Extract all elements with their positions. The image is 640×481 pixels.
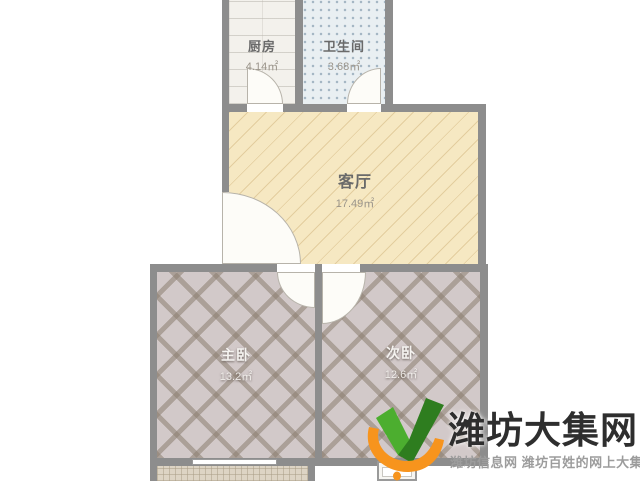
living-top-wall-mid [283, 104, 347, 112]
watermark-title: 潍坊大集网 [448, 400, 640, 454]
living-top-wall-right [381, 104, 486, 112]
kitchen-bath-divider-wall [295, 0, 303, 104]
master-bedroom-window [192, 459, 277, 465]
kitchen-name: 厨房 [246, 36, 278, 55]
second-bedroom-name: 次卧 [385, 343, 417, 363]
living-left-wall [222, 112, 229, 192]
balcony-floor [157, 466, 308, 481]
floorplan-canvas: 厨房 4.14㎡ 卫生间 3.68㎡ 客厅 17.49㎡ 主卧 13.2㎡ 次卧… [0, 0, 640, 481]
living-top-wall-left [222, 104, 247, 112]
site-logo-icon [366, 396, 448, 481]
watermark-subtitle: 潍坊信息网 潍坊百姓的网上大集 [450, 452, 640, 471]
bathroom-label: 卫生间 3.68㎡ [323, 36, 365, 74]
living-room-name: 客厅 [336, 168, 375, 192]
second-bedroom-area: 12.6㎡ [385, 366, 417, 382]
living-room-area: 17.49㎡ [336, 195, 375, 211]
kitchen-left-wall [222, 0, 229, 112]
living-room-label: 客厅 17.49㎡ [336, 168, 375, 211]
kitchen-area: 4.14㎡ [246, 58, 278, 74]
bathroom-name: 卫生间 [323, 36, 365, 55]
master-bedroom-area: 13.2㎡ [220, 368, 252, 384]
kitchen-label: 厨房 4.14㎡ [246, 36, 278, 74]
master-bedroom-name: 主卧 [220, 345, 252, 365]
living-bedroom-wall-left [150, 264, 277, 272]
balcony-right-wall [308, 466, 315, 481]
master-bedroom-label: 主卧 13.2㎡ [220, 345, 252, 384]
living-right-wall [478, 104, 486, 264]
second-bedroom-label: 次卧 12.6㎡ [385, 343, 417, 382]
living-bedroom-wall-right [360, 264, 488, 272]
bathroom-right-wall [385, 0, 393, 104]
living-bedroom-wall-mid [315, 264, 322, 272]
bedroom-left-wall [150, 264, 157, 481]
bedroom-divider-wall [315, 272, 322, 458]
bathroom-area: 3.68㎡ [323, 58, 365, 74]
